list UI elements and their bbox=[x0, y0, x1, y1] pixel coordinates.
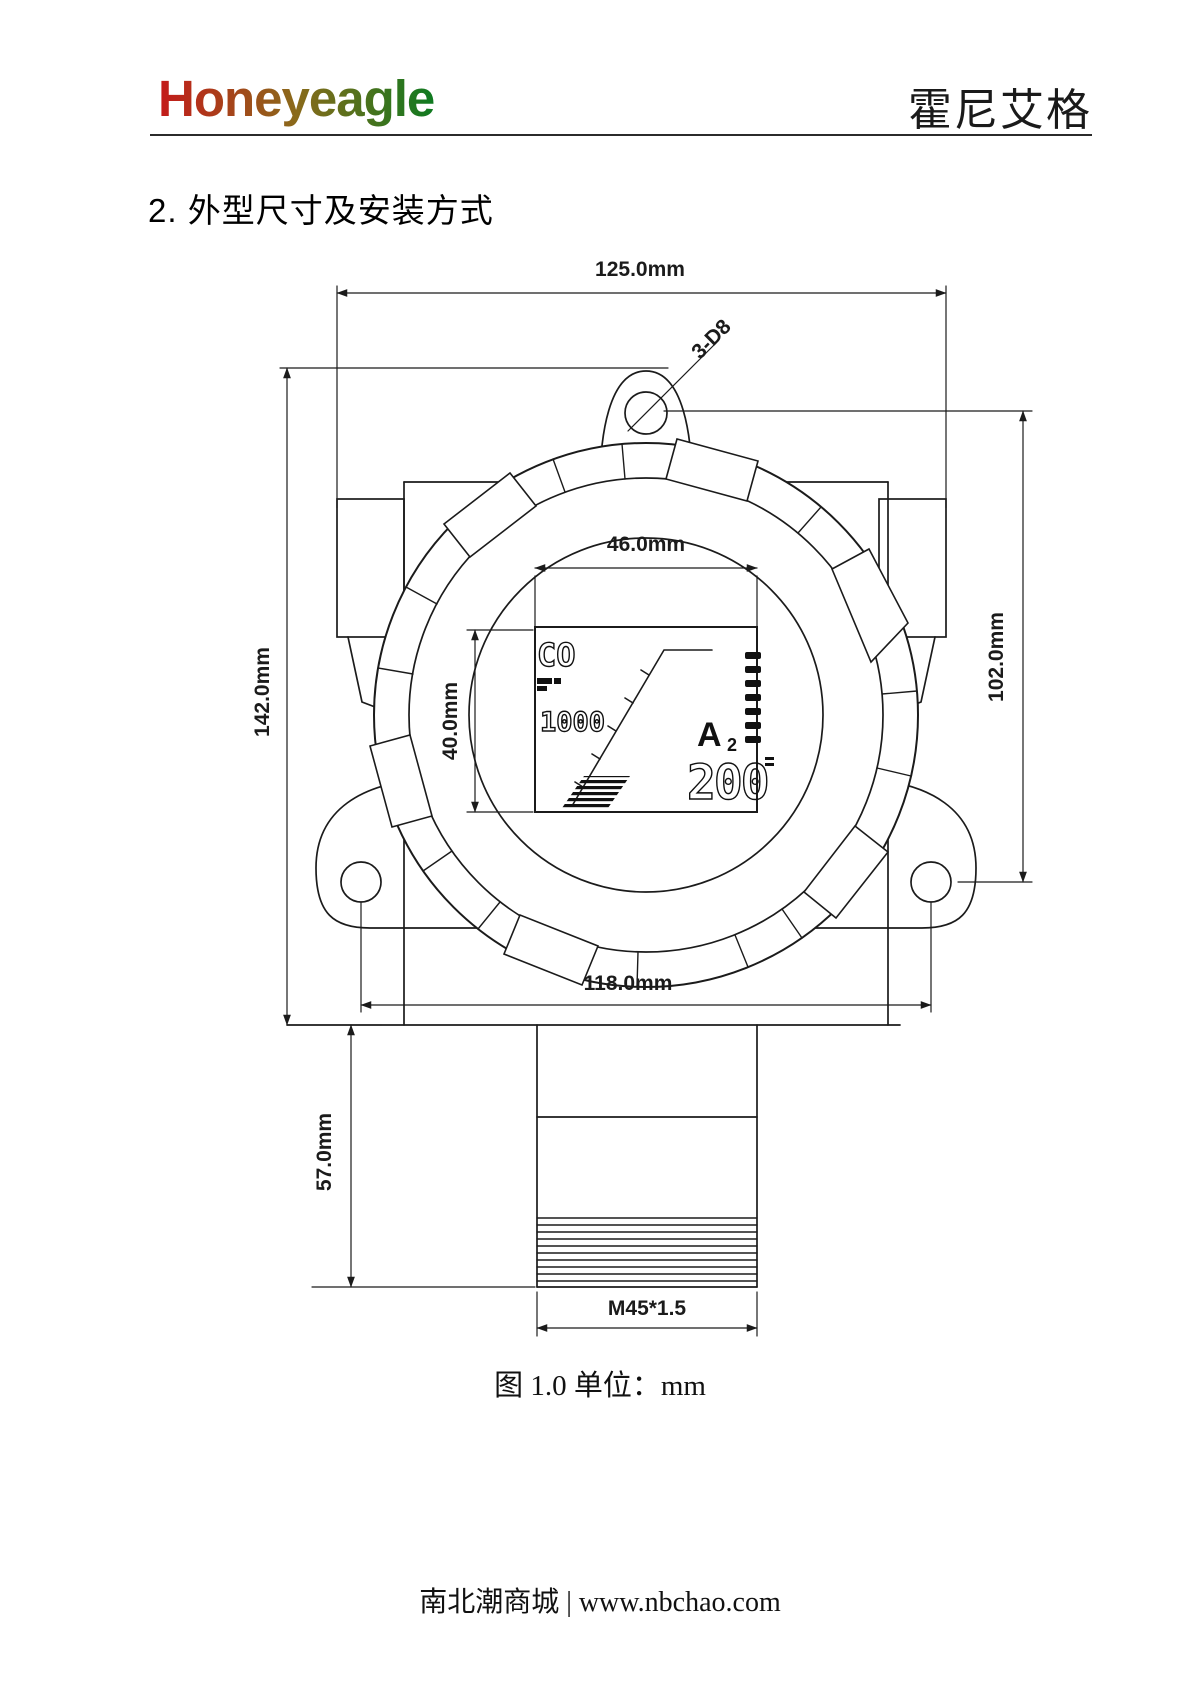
dim-hole-spacing-label: 118.0mm bbox=[584, 972, 673, 995]
thread-lines bbox=[537, 1218, 757, 1281]
lcd-gas-label: CO bbox=[537, 636, 576, 674]
page-footer: 南北潮商城 | www.nbchao.com bbox=[0, 1580, 1200, 1620]
sensor-cylinder bbox=[537, 1025, 757, 1287]
dimension-drawing: CO 1000 A 2 200 bbox=[0, 0, 1200, 1696]
dim-right-height-label: 102.0mm bbox=[985, 612, 1008, 702]
lcd-reading-value: 200 bbox=[687, 755, 768, 811]
right-mount-hole bbox=[911, 862, 951, 902]
dim-display-height-label: 40.0mm bbox=[439, 682, 462, 760]
lcd-range-value: 1000 bbox=[540, 707, 605, 738]
dim-display-width-label: 46.0mm bbox=[607, 533, 685, 556]
dim-overall-height-label: 142.0mm bbox=[251, 647, 274, 737]
lcd-alarm-label: A bbox=[697, 716, 722, 754]
left-mount-hole bbox=[341, 862, 381, 902]
dim-probe-height-label: 57.0mm bbox=[313, 1113, 336, 1191]
figure-caption: 图 1.0 单位：mm bbox=[0, 1362, 1200, 1404]
lcd-alarm-sub: 2 bbox=[727, 735, 737, 755]
dim-top-width-label: 125.0mm bbox=[595, 258, 685, 281]
document-page: Honeyeagle 霍尼艾格 2. 外型尺寸及安装方式 bbox=[0, 0, 1200, 1696]
mount-hole-label: 3-D8 bbox=[687, 315, 736, 364]
dim-thread-label: M45*1.5 bbox=[608, 1297, 687, 1320]
